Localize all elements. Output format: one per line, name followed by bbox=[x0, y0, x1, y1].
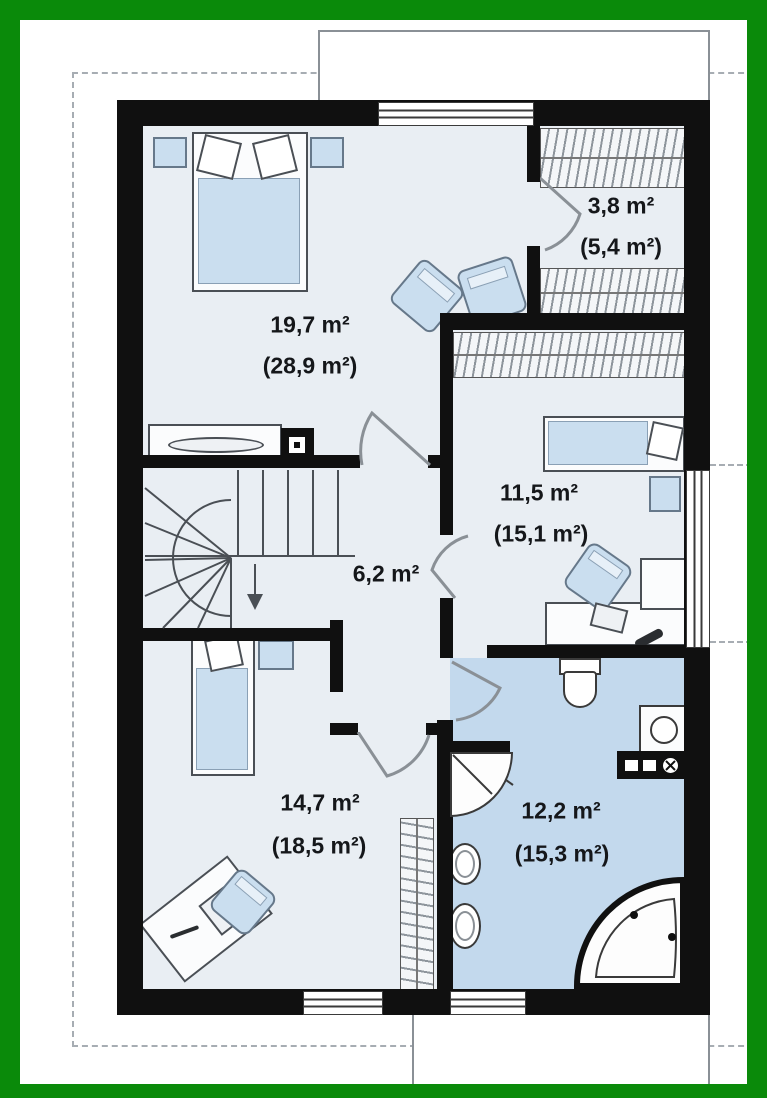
wall-segment bbox=[440, 330, 453, 535]
frame-bottom bbox=[0, 1084, 767, 1098]
wall-segment bbox=[330, 620, 343, 692]
washing-machine bbox=[639, 705, 687, 753]
wardrobe-rail bbox=[540, 268, 686, 317]
stairs bbox=[143, 468, 357, 630]
single-bed bbox=[543, 416, 685, 472]
frame-left bbox=[0, 0, 20, 1098]
wardrobe-rail bbox=[400, 818, 434, 990]
pillow bbox=[646, 421, 684, 461]
wall-segment bbox=[487, 645, 686, 658]
room-area-label: 6,2 m² bbox=[353, 561, 419, 588]
room-area-gross-label: (5,4 m²) bbox=[580, 234, 662, 261]
wall-segment bbox=[440, 598, 453, 658]
dashed-extension-line bbox=[710, 464, 752, 466]
room-area-gross-label: (28,9 m²) bbox=[263, 353, 358, 380]
frame-top bbox=[0, 0, 767, 20]
wall-segment bbox=[527, 126, 540, 182]
window bbox=[378, 102, 534, 126]
counter-appliance bbox=[617, 751, 684, 779]
room-area-label: 12,2 m² bbox=[521, 798, 600, 825]
double-bed bbox=[192, 132, 308, 292]
bed-blanket bbox=[196, 668, 248, 770]
room-area-label: 3,8 m² bbox=[588, 193, 654, 220]
window bbox=[303, 991, 383, 1015]
dormer-outline-bottom bbox=[412, 1013, 710, 1089]
wall-outer-left bbox=[117, 100, 143, 1015]
chimney-flue bbox=[281, 428, 314, 463]
floor-plan: 19,7 m² (28,9 m²) 3,8 m² (5,4 m²) 11,5 m… bbox=[0, 0, 767, 1098]
nightstand bbox=[310, 137, 344, 168]
room-area-label: 11,5 m² bbox=[500, 480, 578, 507]
wall-segment bbox=[440, 741, 510, 752]
nightstand bbox=[258, 640, 294, 670]
door-arc bbox=[356, 732, 432, 780]
pen bbox=[170, 925, 200, 939]
room-area-label: 19,7 m² bbox=[270, 312, 349, 339]
wall-segment bbox=[330, 723, 358, 735]
pillow bbox=[196, 134, 242, 180]
wardrobe-rail bbox=[453, 332, 686, 378]
door-arc bbox=[428, 534, 488, 602]
washbasin bbox=[449, 843, 481, 885]
frame-right bbox=[747, 0, 767, 1098]
room-area-label: 14,7 m² bbox=[280, 790, 359, 817]
wall-segment bbox=[527, 246, 540, 318]
dormer-outline-top bbox=[318, 30, 710, 106]
nightstand bbox=[153, 137, 187, 168]
single-bed bbox=[191, 632, 255, 776]
shower bbox=[450, 752, 514, 818]
wall-segment bbox=[117, 455, 360, 468]
bed-blanket bbox=[198, 178, 300, 284]
dashed-extension-line bbox=[710, 641, 752, 643]
window bbox=[686, 470, 710, 648]
room-area-gross-label: (15,3 m²) bbox=[515, 841, 610, 868]
pillow bbox=[252, 134, 298, 180]
door-arc bbox=[450, 660, 512, 722]
wall-outer-bottom bbox=[117, 989, 710, 1015]
washbasin bbox=[449, 903, 481, 949]
bed-blanket bbox=[548, 421, 648, 465]
desk-return bbox=[640, 558, 687, 610]
corner-bathtub bbox=[574, 877, 686, 989]
window bbox=[450, 991, 526, 1015]
nightstand bbox=[649, 476, 681, 512]
room-area-gross-label: (15,1 m²) bbox=[494, 521, 589, 548]
room-area-gross-label: (18,5 m²) bbox=[272, 833, 367, 860]
wall-segment bbox=[440, 313, 686, 330]
door-arc bbox=[355, 390, 440, 468]
